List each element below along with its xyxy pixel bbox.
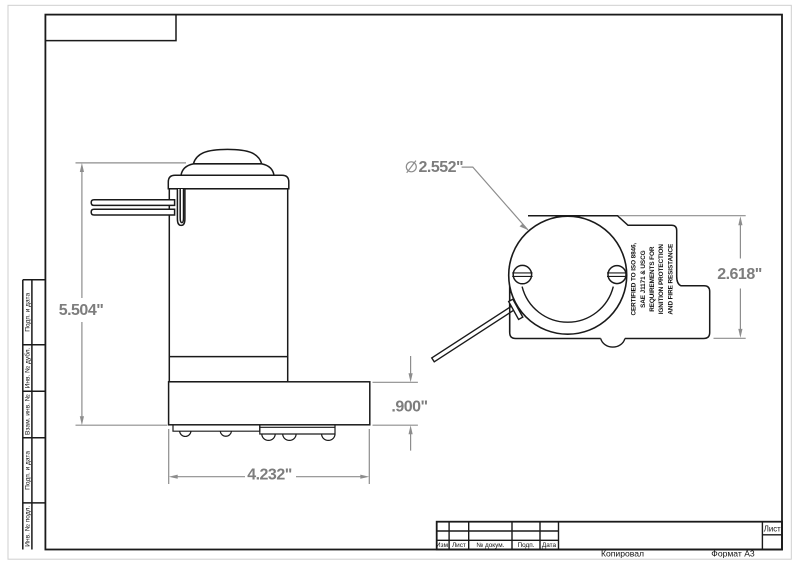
- svg-text:2.552": 2.552": [419, 159, 464, 176]
- svg-text:2.618": 2.618": [717, 266, 762, 283]
- svg-text:Дата: Дата: [542, 542, 557, 549]
- svg-text:Лист: Лист: [452, 542, 466, 549]
- svg-text:IGNITION PROTECTION: IGNITION PROTECTION: [658, 244, 665, 315]
- svg-text:AND FIRE RESISTANCE: AND FIRE RESISTANCE: [667, 243, 674, 315]
- svg-text:REQUIREMENTS FOR: REQUIREMENTS FOR: [649, 246, 656, 312]
- svg-text:5.504": 5.504": [59, 302, 104, 319]
- svg-text:SAE J1171 & USCG: SAE J1171 & USCG: [640, 250, 647, 307]
- svg-text:Лист: Лист: [764, 525, 781, 534]
- svg-text:Подп. и дата: Подп. и дата: [25, 293, 32, 332]
- svg-text:.900": .900": [391, 399, 427, 416]
- svg-text:Взам. инв. №: Взам. инв. №: [25, 394, 32, 435]
- svg-text:Подп. и дата: Подп. и дата: [25, 451, 32, 490]
- svg-text:Изм.: Изм.: [436, 542, 450, 549]
- svg-text:Подп.: Подп.: [518, 542, 535, 549]
- svg-text:4.232": 4.232": [247, 467, 292, 484]
- svg-text:Копировал: Копировал: [601, 549, 644, 559]
- svg-text:Инв. № подл.: Инв. № подл.: [25, 505, 32, 546]
- svg-text:Инв. № дубл.: Инв. № дубл.: [24, 347, 32, 388]
- svg-text:№ докум.: № докум.: [476, 542, 504, 549]
- svg-text:CERTIFIED TO ISO 8846,: CERTIFIED TO ISO 8846,: [631, 243, 638, 316]
- svg-text:Формат А3: Формат А3: [711, 549, 755, 559]
